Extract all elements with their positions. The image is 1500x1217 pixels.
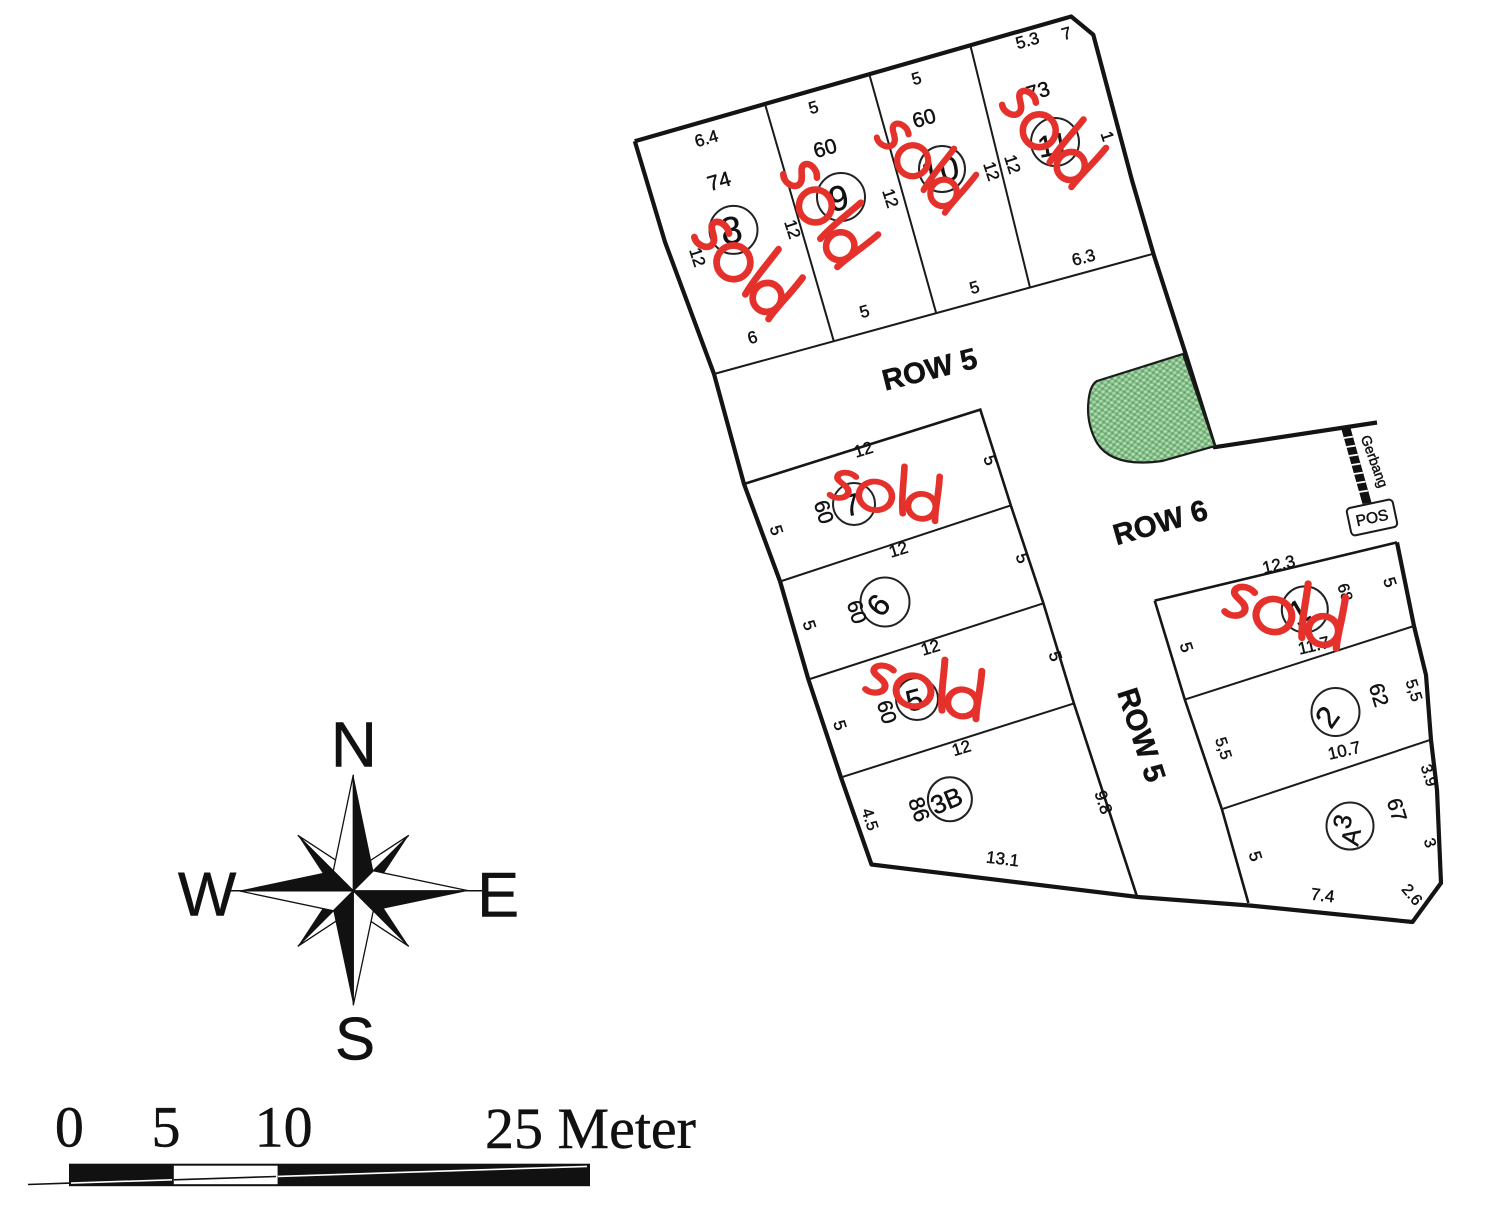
svg-text:25 Meter: 25 Meter xyxy=(485,1096,696,1161)
svg-text:13.1: 13.1 xyxy=(985,848,1020,871)
svg-text:7.4: 7.4 xyxy=(1310,885,1336,907)
svg-text:S: S xyxy=(335,1006,375,1073)
svg-text:0: 0 xyxy=(55,1095,84,1160)
svg-text:N: N xyxy=(331,709,377,781)
svg-text:10: 10 xyxy=(255,1095,313,1160)
svg-text:E: E xyxy=(477,861,519,931)
svg-text:5: 5 xyxy=(152,1095,181,1160)
svg-text:W: W xyxy=(178,861,237,930)
